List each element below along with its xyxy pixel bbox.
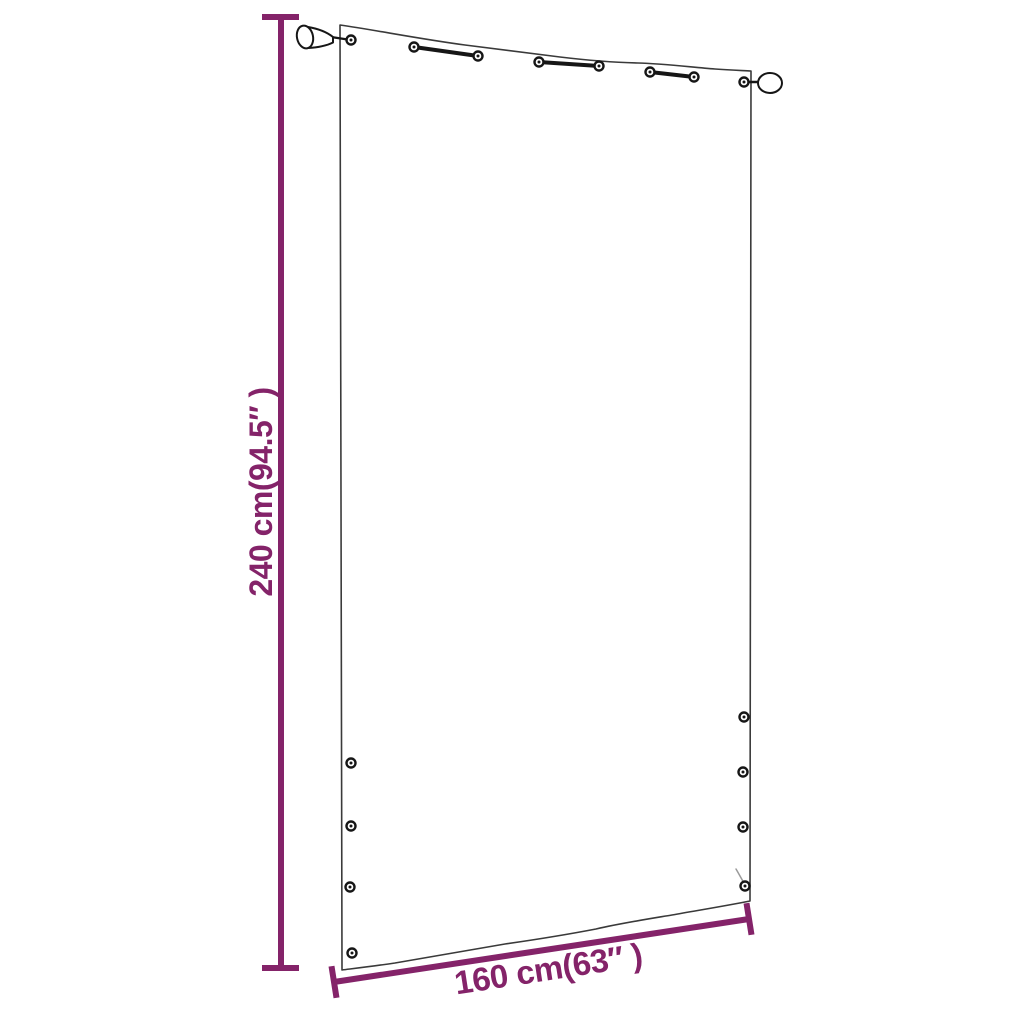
grommet-top-8 bbox=[740, 78, 749, 87]
grommet-right-3 bbox=[739, 823, 748, 832]
grommet-left-2 bbox=[347, 822, 356, 831]
rod-right-finial bbox=[758, 73, 782, 93]
grommet-top-1 bbox=[347, 36, 356, 45]
curtain-panel-group bbox=[340, 25, 751, 970]
grommet-top-5 bbox=[595, 62, 604, 71]
grommet-right-1 bbox=[740, 713, 749, 722]
dimension-diagram: 240 cm(94.5″ ) 160 cm(63″ ) bbox=[0, 0, 1024, 1024]
grommet-top-4 bbox=[535, 58, 544, 67]
product-dimension-image: 240 cm(94.5″ ) 160 cm(63″ ) bbox=[0, 0, 1024, 1024]
grommet-left-1 bbox=[347, 759, 356, 768]
grommet-top-3 bbox=[474, 52, 483, 61]
grommet-top-6 bbox=[646, 68, 655, 77]
height-dimension-label: 240 cm(94.5″ ) bbox=[243, 387, 279, 596]
grommet-top-7 bbox=[690, 73, 699, 82]
grommet-left-3 bbox=[346, 883, 355, 892]
grommet-left-4 bbox=[348, 949, 357, 958]
curtain-outline bbox=[340, 25, 751, 970]
grommet-top-2 bbox=[410, 43, 419, 52]
grommet-right-4 bbox=[741, 882, 750, 891]
grommet-right-2 bbox=[739, 768, 748, 777]
